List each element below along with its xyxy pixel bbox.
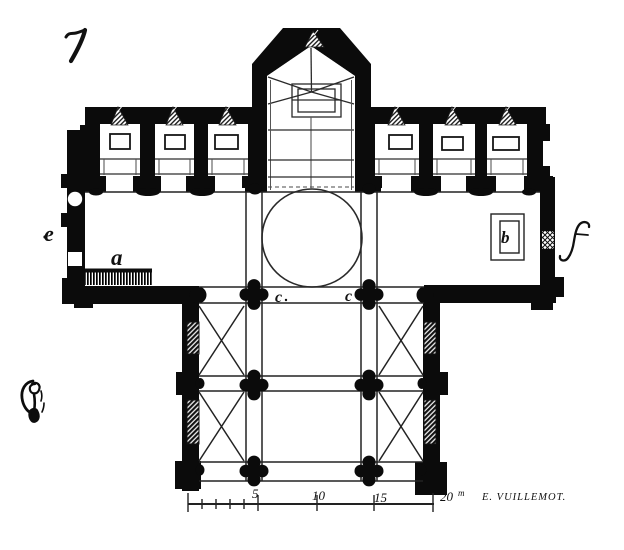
svg-text:20: 20: [440, 489, 454, 504]
svg-text:E. VUILLEMOT.: E. VUILLEMOT.: [481, 492, 566, 503]
svg-text:a: a: [111, 245, 123, 270]
svg-text:m: m: [458, 488, 465, 498]
svg-text:5: 5: [252, 486, 259, 501]
svg-text:b: b: [501, 228, 510, 247]
svg-text:c: c: [345, 288, 352, 305]
svg-text:e: e: [44, 221, 54, 246]
svg-text:c: c: [275, 289, 282, 306]
svg-text:10: 10: [312, 488, 326, 503]
svg-text:15: 15: [374, 490, 388, 505]
